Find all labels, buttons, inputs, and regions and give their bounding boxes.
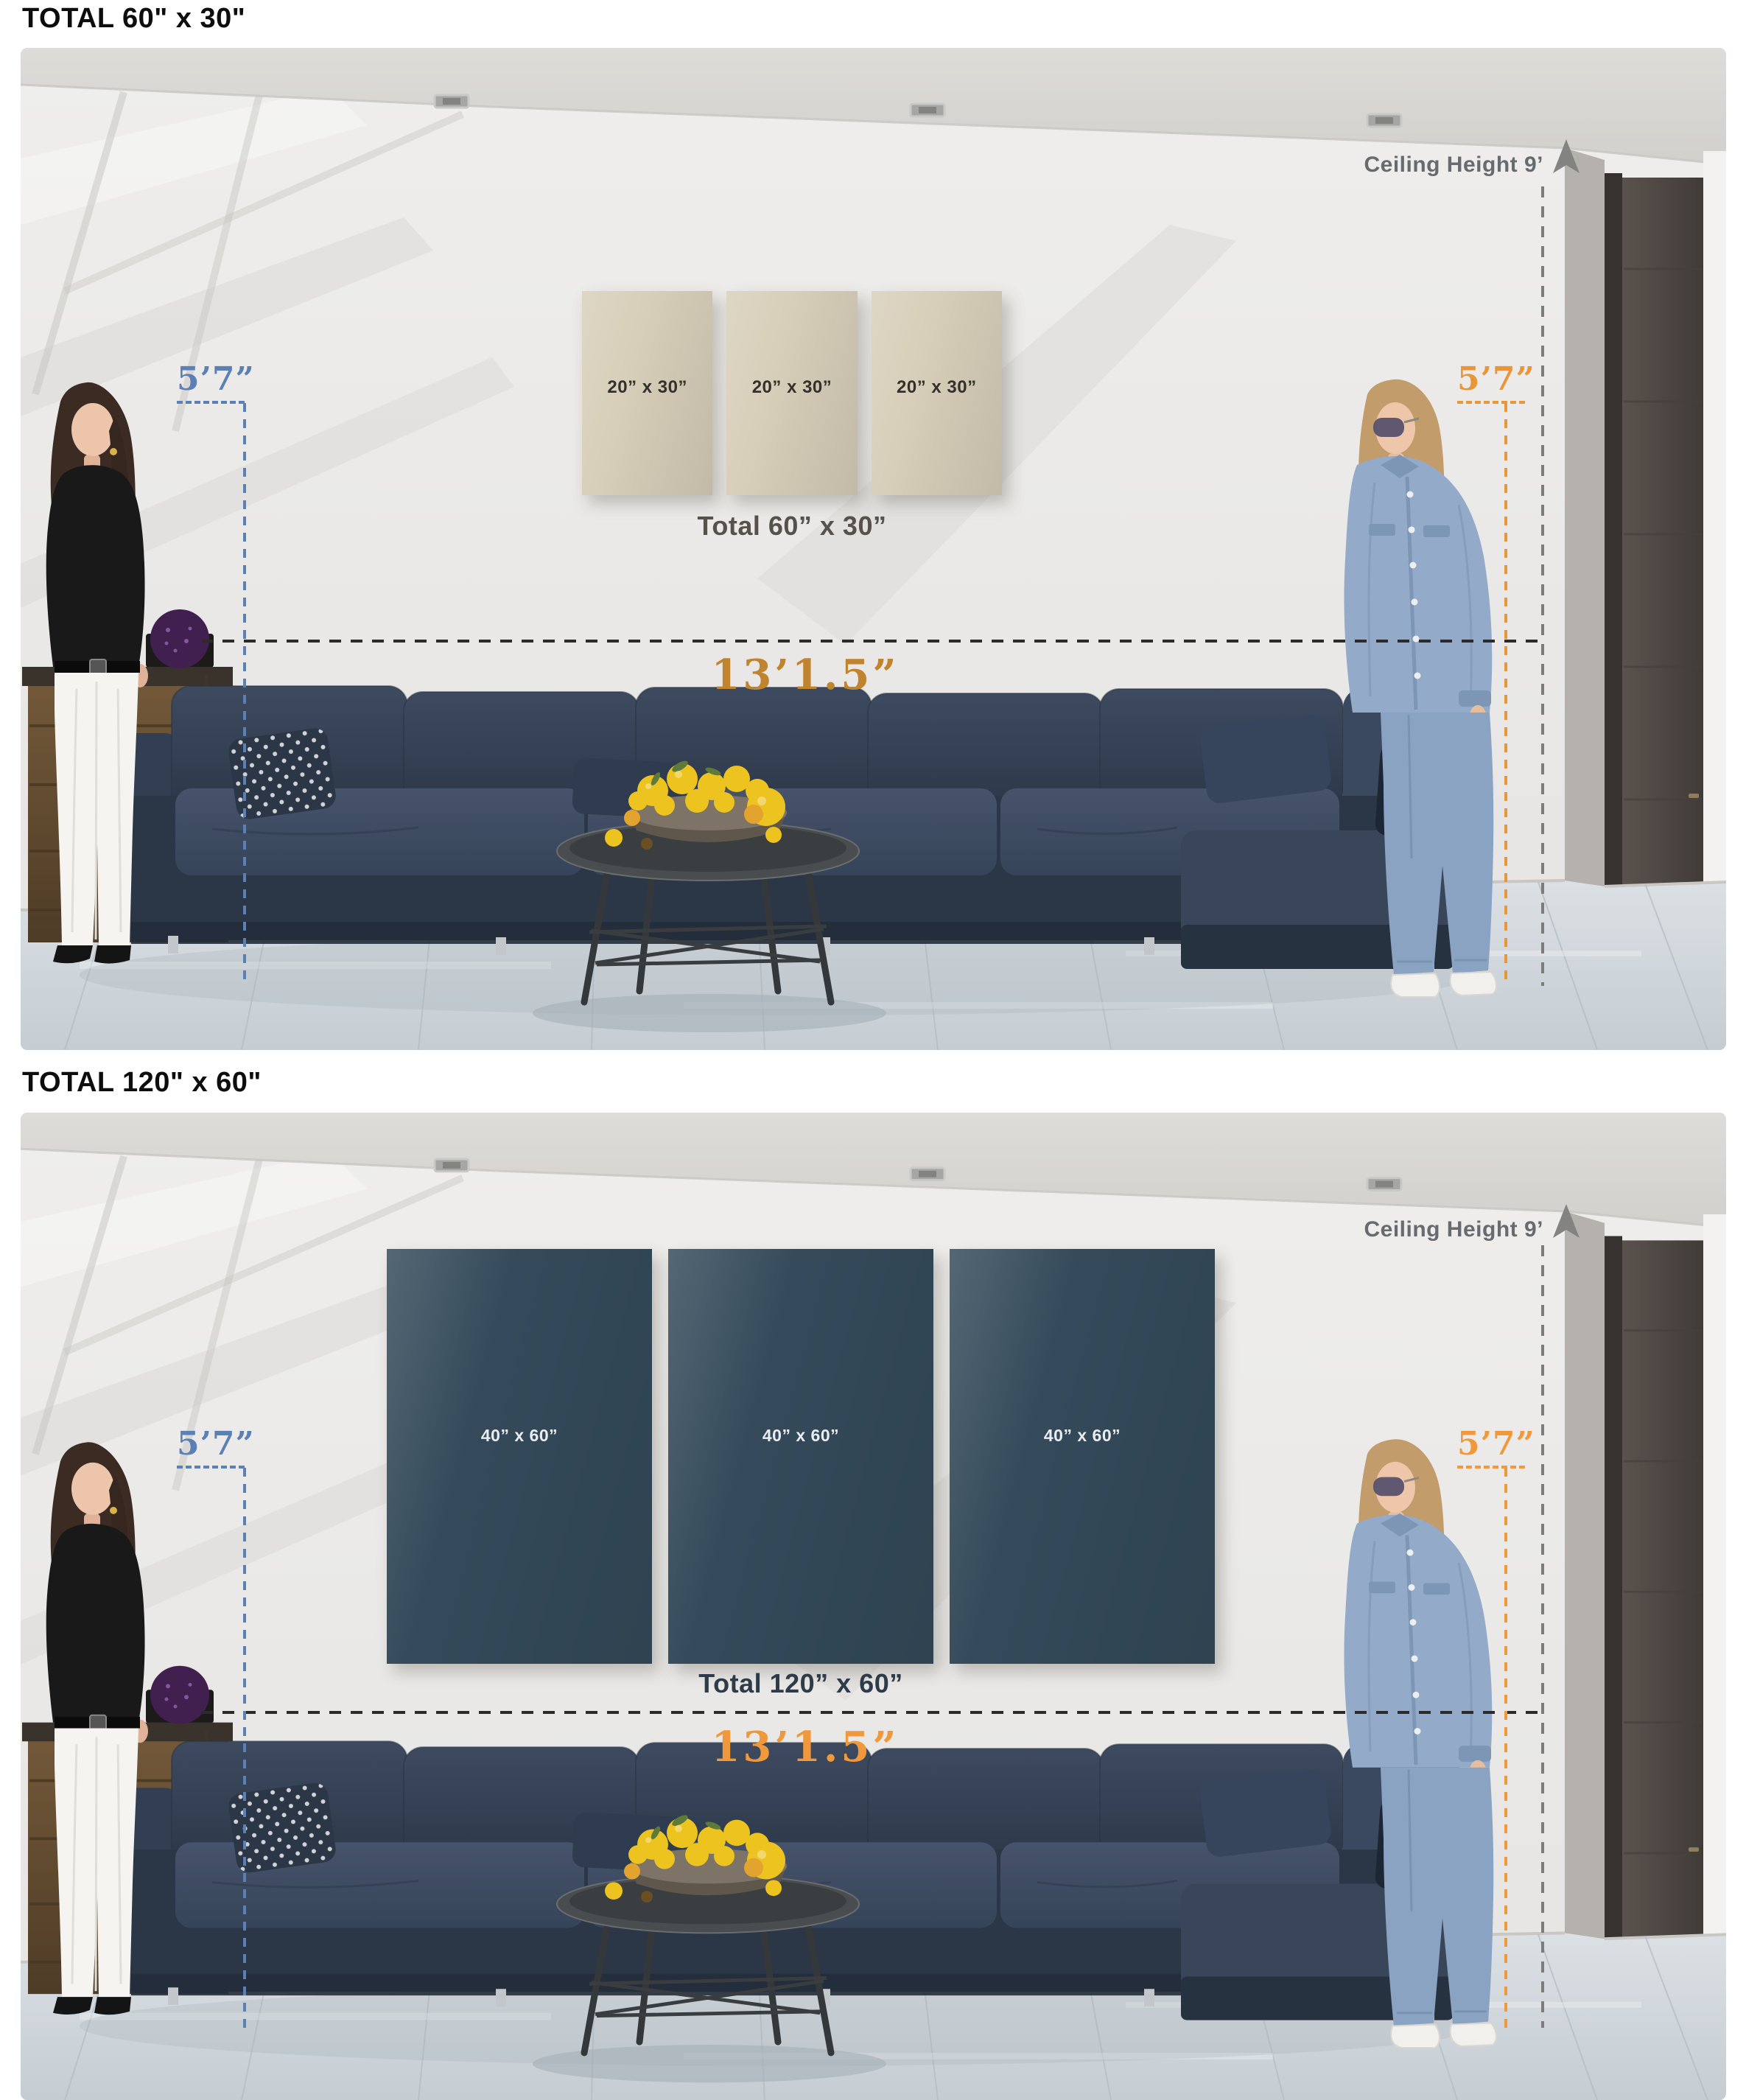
ceiling-height-line xyxy=(1541,1245,1544,2028)
person-height-line-left xyxy=(243,403,246,982)
person-height-label-left: 5’7” xyxy=(177,1425,245,1469)
ceiling-light xyxy=(435,1159,469,1172)
pillow xyxy=(1199,1768,1332,1858)
ceiling-light xyxy=(1367,1178,1401,1191)
sofa-width-label: 13’1.5” xyxy=(201,1723,1409,1771)
canvas-size-label: 40” x 60” xyxy=(1044,1426,1121,1446)
room-scene xyxy=(21,48,1726,1050)
door xyxy=(1565,1211,1726,2013)
canvas-size-label: 20” x 30” xyxy=(897,377,977,398)
ceiling-height-label: Ceiling Height 9’ xyxy=(1364,1217,1543,1242)
canvas-set: 20” x 30” 20” x 30” 20” x 30” xyxy=(582,291,1002,495)
ceiling-light xyxy=(911,104,944,116)
total-size-label: Total 60” x 30” xyxy=(582,511,1002,542)
door xyxy=(1565,148,1726,962)
earring xyxy=(110,1507,117,1514)
person-height-line-left xyxy=(243,1468,246,2034)
canvas-size-label: 20” x 30” xyxy=(752,377,832,398)
size-option-title: TOTAL 120" x 60" xyxy=(22,1067,262,1099)
canvas-panel: 40” x 60” xyxy=(387,1249,652,1664)
canvas-set: 40” x 60” 40” x 60” 40” x 60” xyxy=(387,1249,1215,1664)
canvas-size-label: 40” x 60” xyxy=(762,1426,839,1446)
canvas-panel: 40” x 60” xyxy=(950,1249,1215,1664)
ceiling-height-label: Ceiling Height 9’ xyxy=(1364,153,1543,178)
sofa-width-dimension-line xyxy=(201,1711,1543,1714)
size-option-title: TOTAL 60" x 30" xyxy=(22,3,245,35)
pillow xyxy=(1199,713,1332,805)
ceiling-light xyxy=(435,95,469,108)
canvas-panel: 20” x 30” xyxy=(872,291,1002,495)
ceiling-light xyxy=(1367,114,1401,127)
sofa-width-label: 13’1.5” xyxy=(201,651,1409,699)
canvas-panel: 20” x 30” xyxy=(726,291,857,495)
up-arrow-icon xyxy=(1552,139,1581,185)
up-arrow-icon xyxy=(1552,1204,1581,1250)
room-preview-60x30: 20” x 30” 20” x 30” 20” x 30” Total 60” … xyxy=(21,48,1726,1050)
person-height-label-right: 5’7” xyxy=(1457,1425,1525,1469)
door-handle xyxy=(1689,794,1699,798)
sofa-width-dimension-line xyxy=(201,640,1543,643)
door-handle xyxy=(1689,1847,1699,1852)
purple-decor-ball xyxy=(150,609,209,668)
canvas-panel: 40” x 60” xyxy=(668,1249,933,1664)
purple-decor-ball xyxy=(150,1666,209,1724)
total-size-label: Total 120” x 60” xyxy=(387,1668,1215,1699)
ceiling-light xyxy=(911,1168,944,1180)
person-height-label-right: 5’7” xyxy=(1457,360,1525,404)
person-height-line-right xyxy=(1504,403,1507,985)
room-preview-120x60: 40” x 60” 40” x 60” 40” x 60” Total 120”… xyxy=(21,1113,1726,2100)
person-height-line-right xyxy=(1504,1468,1507,2035)
canvas-size-label: 20” x 30” xyxy=(607,377,687,398)
earring xyxy=(110,448,117,455)
canvas-panel: 20” x 30” xyxy=(582,291,712,495)
room-scene-illustration xyxy=(21,48,1726,1050)
canvas-size-label: 40” x 60” xyxy=(481,1426,558,1446)
person-height-label-left: 5’7” xyxy=(177,360,245,404)
ceiling-height-line xyxy=(1541,186,1544,986)
